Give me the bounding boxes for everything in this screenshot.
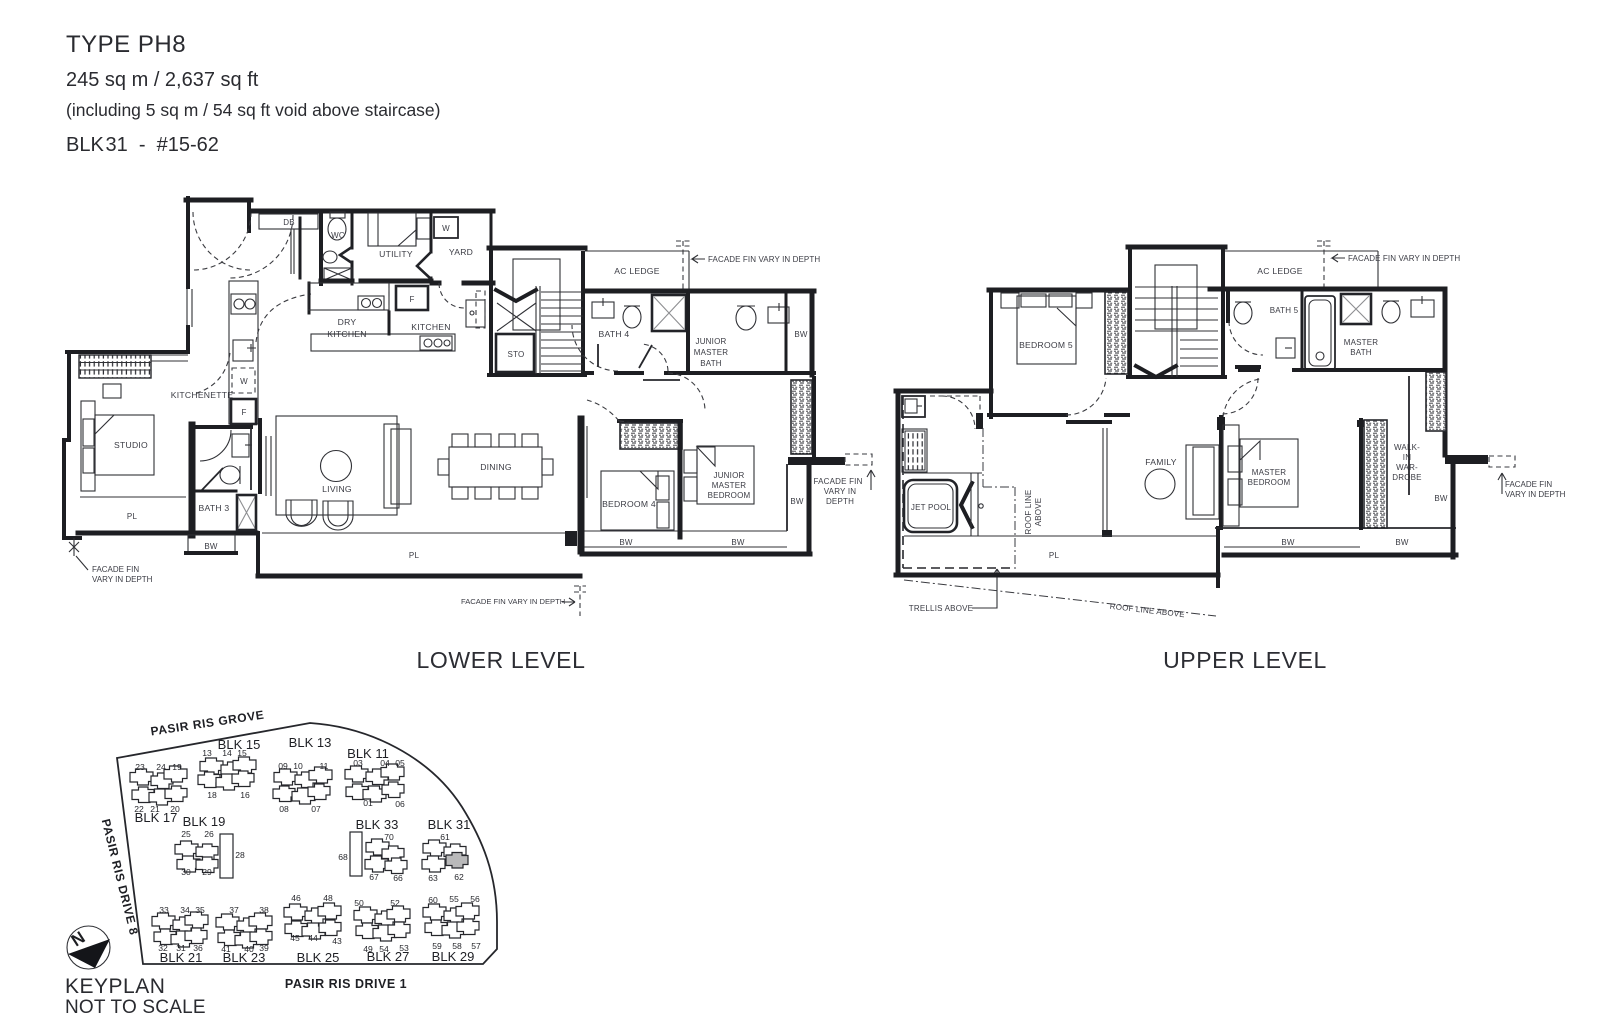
- svg-text:FACADE FIN: FACADE FIN: [92, 565, 139, 574]
- svg-text:DROBE: DROBE: [1392, 473, 1421, 482]
- svg-text:BW: BW: [794, 330, 808, 339]
- svg-text:50: 50: [354, 898, 364, 908]
- svg-text:53: 53: [399, 943, 409, 953]
- svg-text:MASTER: MASTER: [712, 481, 747, 490]
- svg-text:BW: BW: [204, 542, 218, 551]
- svg-text:FACADE FIN: FACADE FIN: [1505, 480, 1552, 489]
- svg-text:07: 07: [311, 804, 321, 814]
- svg-text:08: 08: [279, 804, 289, 814]
- svg-text:ABOVE: ABOVE: [1034, 498, 1043, 527]
- svg-text:BEDROOM 5: BEDROOM 5: [1019, 340, 1073, 350]
- svg-text:KITCHEN: KITCHEN: [411, 322, 450, 332]
- svg-text:04: 04: [380, 758, 390, 768]
- svg-text:BATH 4: BATH 4: [599, 329, 630, 339]
- svg-text:AC LEDGE: AC LEDGE: [1257, 266, 1302, 276]
- svg-text:57: 57: [471, 941, 481, 951]
- svg-text:BATH 3: BATH 3: [199, 503, 230, 513]
- svg-text:NOT TO SCALE: NOT TO SCALE: [65, 997, 206, 1018]
- svg-text:JUNIOR: JUNIOR: [696, 337, 727, 346]
- svg-text:BW: BW: [731, 538, 745, 547]
- svg-text:STUDIO: STUDIO: [114, 440, 148, 450]
- svg-text:PL: PL: [127, 512, 138, 521]
- svg-text:BW: BW: [1434, 494, 1448, 503]
- svg-text:52: 52: [390, 898, 400, 908]
- svg-text:40: 40: [244, 944, 254, 954]
- svg-text:DEPTH: DEPTH: [826, 497, 854, 506]
- svg-text:BATH 5: BATH 5: [1270, 306, 1299, 315]
- svg-text:KITCHENETTE: KITCHENETTE: [171, 390, 233, 400]
- svg-text:15: 15: [237, 748, 247, 758]
- svg-text:10: 10: [293, 761, 303, 771]
- svg-text:61: 61: [440, 832, 450, 842]
- svg-text:18: 18: [207, 790, 217, 800]
- svg-text:MASTER: MASTER: [1344, 338, 1379, 347]
- svg-text:70: 70: [384, 832, 394, 842]
- svg-text:PL: PL: [1049, 551, 1060, 560]
- svg-text:BEDROOM: BEDROOM: [1248, 478, 1291, 487]
- svg-text:BW: BW: [790, 497, 804, 506]
- svg-text:23: 23: [135, 762, 145, 772]
- svg-text:BATH: BATH: [1350, 348, 1372, 357]
- svg-text:BEDROOM: BEDROOM: [708, 491, 751, 500]
- svg-text:03: 03: [353, 758, 363, 768]
- svg-text:41: 41: [221, 944, 231, 954]
- svg-text:33: 33: [159, 905, 169, 915]
- svg-text:62: 62: [454, 872, 464, 882]
- svg-text:BATH: BATH: [700, 359, 722, 368]
- svg-text:BLK 19: BLK 19: [183, 814, 226, 829]
- svg-text:WAR-: WAR-: [1396, 463, 1418, 472]
- svg-text:11: 11: [320, 761, 329, 771]
- svg-text:UTILITY: UTILITY: [379, 249, 413, 259]
- svg-text:FAMILY: FAMILY: [1145, 457, 1176, 467]
- svg-text:BLK 13: BLK 13: [289, 735, 332, 750]
- svg-text:20: 20: [170, 804, 180, 814]
- svg-text:DINING: DINING: [480, 462, 512, 472]
- svg-text:66: 66: [393, 873, 403, 883]
- svg-text:JUNIOR: JUNIOR: [714, 471, 745, 480]
- svg-text:22: 22: [134, 804, 144, 814]
- svg-text:05: 05: [395, 758, 405, 768]
- svg-text:19: 19: [172, 762, 182, 772]
- svg-text:30: 30: [181, 867, 191, 877]
- svg-text:STO: STO: [508, 350, 525, 359]
- svg-text:YARD: YARD: [449, 247, 473, 257]
- svg-text:PASIR RIS DRIVE 1: PASIR RIS DRIVE 1: [285, 977, 407, 991]
- svg-text:WALK-: WALK-: [1394, 443, 1420, 452]
- svg-text:245 sq m / 2,637 sq ft: 245 sq m / 2,637 sq ft: [66, 69, 259, 91]
- svg-text:14: 14: [222, 748, 232, 758]
- svg-text:06: 06: [395, 799, 405, 809]
- svg-text:BLK 31 - #15-62: BLK 31 - #15-62: [66, 134, 219, 156]
- svg-text:01: 01: [363, 798, 373, 808]
- svg-text:BEDROOM 4: BEDROOM 4: [602, 499, 656, 509]
- svg-text:VARY IN DEPTH: VARY IN DEPTH: [92, 575, 153, 584]
- svg-text:28: 28: [235, 850, 245, 860]
- svg-text:49: 49: [363, 944, 373, 954]
- svg-text:16: 16: [240, 790, 250, 800]
- svg-text:DRY: DRY: [338, 317, 357, 327]
- svg-text:DB: DB: [283, 218, 295, 227]
- svg-text:LOWER LEVEL: LOWER LEVEL: [417, 647, 586, 673]
- svg-text:KEYPLAN: KEYPLAN: [65, 975, 165, 998]
- svg-text:VARY IN DEPTH: VARY IN DEPTH: [1505, 490, 1566, 499]
- svg-text:09: 09: [278, 761, 288, 771]
- svg-text:ROOF LINE: ROOF LINE: [1024, 490, 1033, 535]
- svg-text:BLK 33: BLK 33: [356, 817, 399, 832]
- svg-text:37: 37: [229, 905, 239, 915]
- svg-text:55: 55: [449, 894, 459, 904]
- svg-text:35: 35: [195, 905, 205, 915]
- svg-text:BLK 31: BLK 31: [428, 817, 471, 832]
- svg-text:68: 68: [338, 852, 348, 862]
- svg-text:AC LEDGE: AC LEDGE: [614, 266, 659, 276]
- svg-text:FACADE FIN VARY IN DEPTH: FACADE FIN VARY IN DEPTH: [1348, 254, 1460, 263]
- svg-text:BW: BW: [1281, 538, 1295, 547]
- svg-text:BW: BW: [619, 538, 633, 547]
- svg-text:29: 29: [202, 867, 212, 877]
- svg-text:13: 13: [202, 748, 212, 758]
- svg-text:32: 32: [158, 943, 168, 953]
- svg-text:38: 38: [259, 905, 269, 915]
- svg-text:43: 43: [332, 936, 342, 946]
- svg-text:FACADE FIN VARY IN DEPTH: FACADE FIN VARY IN DEPTH: [461, 597, 565, 606]
- svg-text:67: 67: [369, 872, 379, 882]
- svg-text:FACADE FIN VARY IN DEPTH: FACADE FIN VARY IN DEPTH: [708, 255, 820, 264]
- svg-text:21: 21: [150, 804, 160, 814]
- svg-text:F: F: [409, 295, 414, 304]
- svg-text:LIVING: LIVING: [322, 484, 352, 494]
- svg-text:PL: PL: [409, 551, 420, 560]
- svg-text:44: 44: [308, 933, 318, 943]
- svg-text:WC: WC: [331, 231, 345, 240]
- svg-text:BLK 29: BLK 29: [432, 949, 475, 964]
- svg-text:60: 60: [428, 895, 438, 905]
- svg-text:(including 5 sq m / 54 sq ft v: (including 5 sq m / 54 sq ft void above …: [66, 100, 441, 120]
- svg-text:24: 24: [156, 762, 166, 772]
- svg-text:TRELLIS ABOVE: TRELLIS ABOVE: [909, 604, 973, 613]
- svg-text:63: 63: [428, 873, 438, 883]
- svg-text:31: 31: [176, 943, 186, 953]
- svg-text:56: 56: [470, 894, 480, 904]
- svg-text:45: 45: [290, 933, 300, 943]
- svg-text:W: W: [240, 377, 248, 386]
- svg-text:58: 58: [452, 941, 462, 951]
- svg-text:MASTER: MASTER: [694, 348, 729, 357]
- svg-text:VARY IN: VARY IN: [824, 487, 857, 496]
- svg-text:36: 36: [193, 943, 203, 953]
- svg-text:IN: IN: [1403, 453, 1411, 462]
- svg-text:TYPE PH8: TYPE PH8: [66, 31, 186, 58]
- svg-text:25: 25: [181, 829, 191, 839]
- svg-text:UPPER LEVEL: UPPER LEVEL: [1163, 647, 1327, 673]
- svg-text:59: 59: [432, 941, 442, 951]
- svg-text:MASTER: MASTER: [1252, 468, 1287, 477]
- svg-text:FACADE FIN: FACADE FIN: [813, 477, 862, 486]
- svg-text:W: W: [442, 224, 450, 233]
- svg-text:39: 39: [259, 943, 269, 953]
- svg-text:F: F: [241, 408, 246, 417]
- svg-text:48: 48: [323, 893, 333, 903]
- svg-text:46: 46: [291, 893, 301, 903]
- svg-text:34: 34: [180, 905, 190, 915]
- svg-text:JET POOL: JET POOL: [911, 503, 951, 512]
- svg-text:54: 54: [379, 944, 389, 954]
- svg-text:BW: BW: [1395, 538, 1409, 547]
- svg-text:26: 26: [204, 829, 214, 839]
- svg-text:BLK 25: BLK 25: [297, 950, 340, 965]
